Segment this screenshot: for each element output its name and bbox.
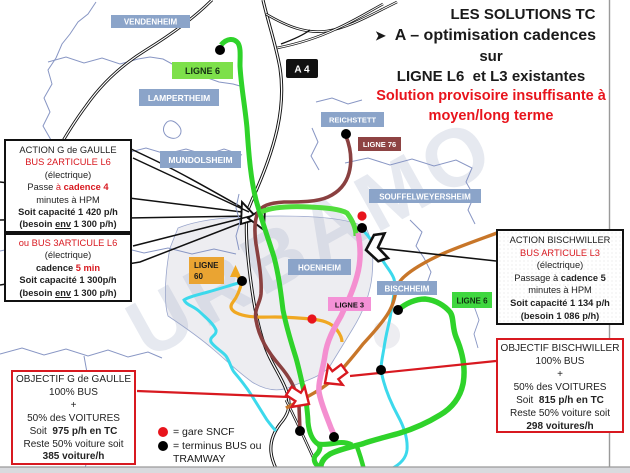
svg-text:60: 60 <box>194 272 203 281</box>
svg-text:LIGNE 6: LIGNE 6 <box>456 297 488 306</box>
svg-text:LIGNE 3: LIGNE 3 <box>335 301 364 310</box>
svg-text:HOENHEIM: HOENHEIM <box>298 264 341 273</box>
svg-text:MUNDOLSHEIM: MUNDOLSHEIM <box>168 155 232 165</box>
svg-text:REICHSTETT: REICHSTETT <box>329 116 377 125</box>
svg-text:LAMPERTHEIM: LAMPERTHEIM <box>148 93 210 103</box>
svg-text:BISCHHEIM: BISCHHEIM <box>385 285 430 294</box>
svg-text:VENDENHEIM: VENDENHEIM <box>124 18 178 27</box>
svg-text:A 4: A 4 <box>294 65 310 76</box>
svg-text:SOUFFELWEYERSHEIM: SOUFFELWEYERSHEIM <box>379 193 471 202</box>
svg-text:LIGNE 76: LIGNE 76 <box>363 140 396 149</box>
svg-text:LIGNE: LIGNE <box>194 261 219 270</box>
svg-text:LIGNE 6: LIGNE 6 <box>185 66 220 76</box>
